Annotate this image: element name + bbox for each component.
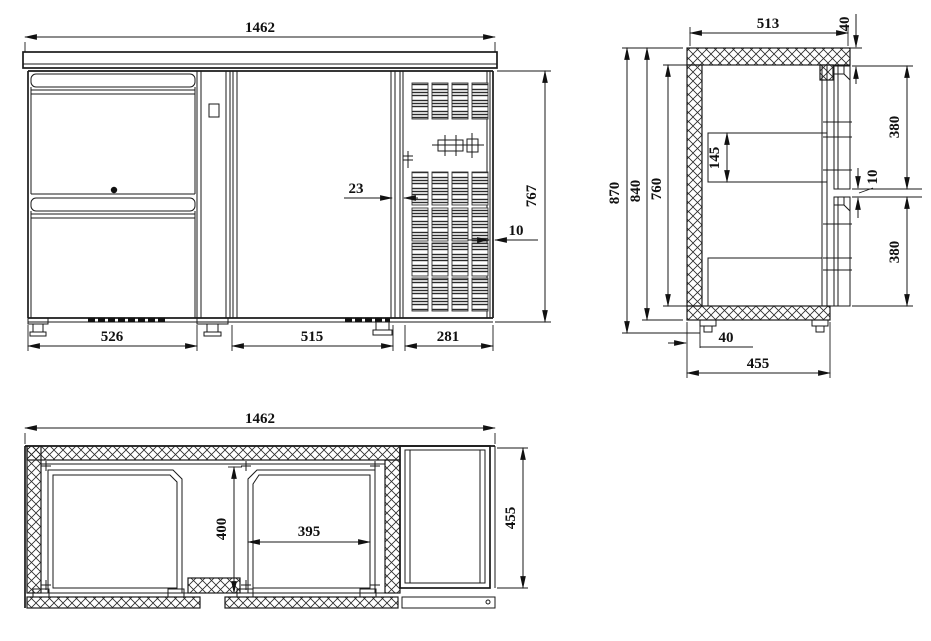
left-foot: [28, 318, 48, 336]
dim-front-height: 767: [524, 184, 540, 207]
door-lock-icon: [209, 104, 219, 117]
dim-front-drawer-section: 526: [101, 329, 124, 345]
dim-front-door-gap: 23: [349, 181, 364, 197]
technical-drawing-canvas: 1462 526 515 281 767 23 10: [0, 0, 931, 641]
thermostat-symbol-icon: [432, 133, 484, 158]
dim-front-panel-gap: 10: [509, 223, 524, 239]
dim-side-door-top-offset: 40: [837, 17, 853, 32]
dim-front-door-width: 515: [301, 329, 324, 345]
side-section-view: 145: [607, 14, 922, 378]
dim-side-wall-thickness: 40: [719, 330, 734, 346]
insulation-top: [687, 48, 850, 65]
insulation-right-pillar: [385, 460, 400, 593]
pillar-foot: [197, 318, 228, 324]
plan-left-door: [48, 470, 182, 593]
dim-plan-overall-width: 1462: [245, 411, 275, 427]
ventilation-grille: [412, 83, 488, 311]
dim-side-interior-height: 760: [649, 178, 665, 201]
dim-side-evaporator: 145: [707, 147, 723, 170]
insulation-back-wall: [27, 446, 400, 460]
worktop: [23, 52, 497, 68]
drawer-section: [31, 74, 195, 320]
dim-side-case-depth: 455: [747, 356, 770, 372]
dim-plan-door-width: 395: [298, 524, 321, 540]
evaporator-box: [708, 133, 827, 182]
rear-vent-strip: [402, 597, 495, 608]
machine-compartment: [400, 446, 495, 588]
lower-shelf: [708, 258, 822, 306]
fastener-mark-icon: [403, 151, 413, 168]
dim-plan-case-depth: 455: [503, 507, 519, 530]
insulation-centre-pillar: [188, 578, 240, 593]
insulation-left-wall: [27, 446, 41, 593]
lower-door-leaf: [834, 197, 850, 306]
dim-side-overall-height: 870: [607, 182, 623, 205]
dim-plan-door-depth: 400: [214, 518, 230, 541]
top-plan-view: 1462 400 395 455: [25, 411, 528, 608]
side-dimensions: 513 40 870 840 760 40 455: [607, 14, 922, 378]
upper-door-leaf: [834, 66, 850, 189]
insulation-front-left: [27, 597, 200, 608]
dim-side-lower-door: 380: [887, 241, 903, 264]
door-foot: [376, 322, 389, 330]
front-door: [233, 71, 395, 335]
ventilation-section: [400, 71, 488, 318]
dim-front-overall-width: 1462: [245, 20, 275, 36]
drawer-lock-icon: [111, 187, 117, 193]
drawer-2-handle-rail: [31, 198, 195, 211]
dim-side-case-height: 840: [628, 180, 644, 203]
centre-pillar: [197, 71, 230, 336]
dim-side-door-gap: 10: [865, 170, 881, 185]
insulation-left: [687, 65, 702, 306]
insulation-bottom: [687, 306, 830, 320]
hinge-pivot-icons: [41, 461, 380, 590]
plan-dimensions: 1462 400 395 455: [25, 411, 528, 593]
drawer-1-handle-rail: [31, 74, 195, 87]
dim-side-depth: 513: [757, 16, 780, 32]
insulation-front-right: [225, 597, 398, 608]
front-elevation-view: 1462 526 515 281 767 23 10: [23, 20, 551, 351]
dim-side-upper-door: 380: [887, 116, 903, 139]
dim-front-vent-width: 281: [437, 329, 460, 345]
